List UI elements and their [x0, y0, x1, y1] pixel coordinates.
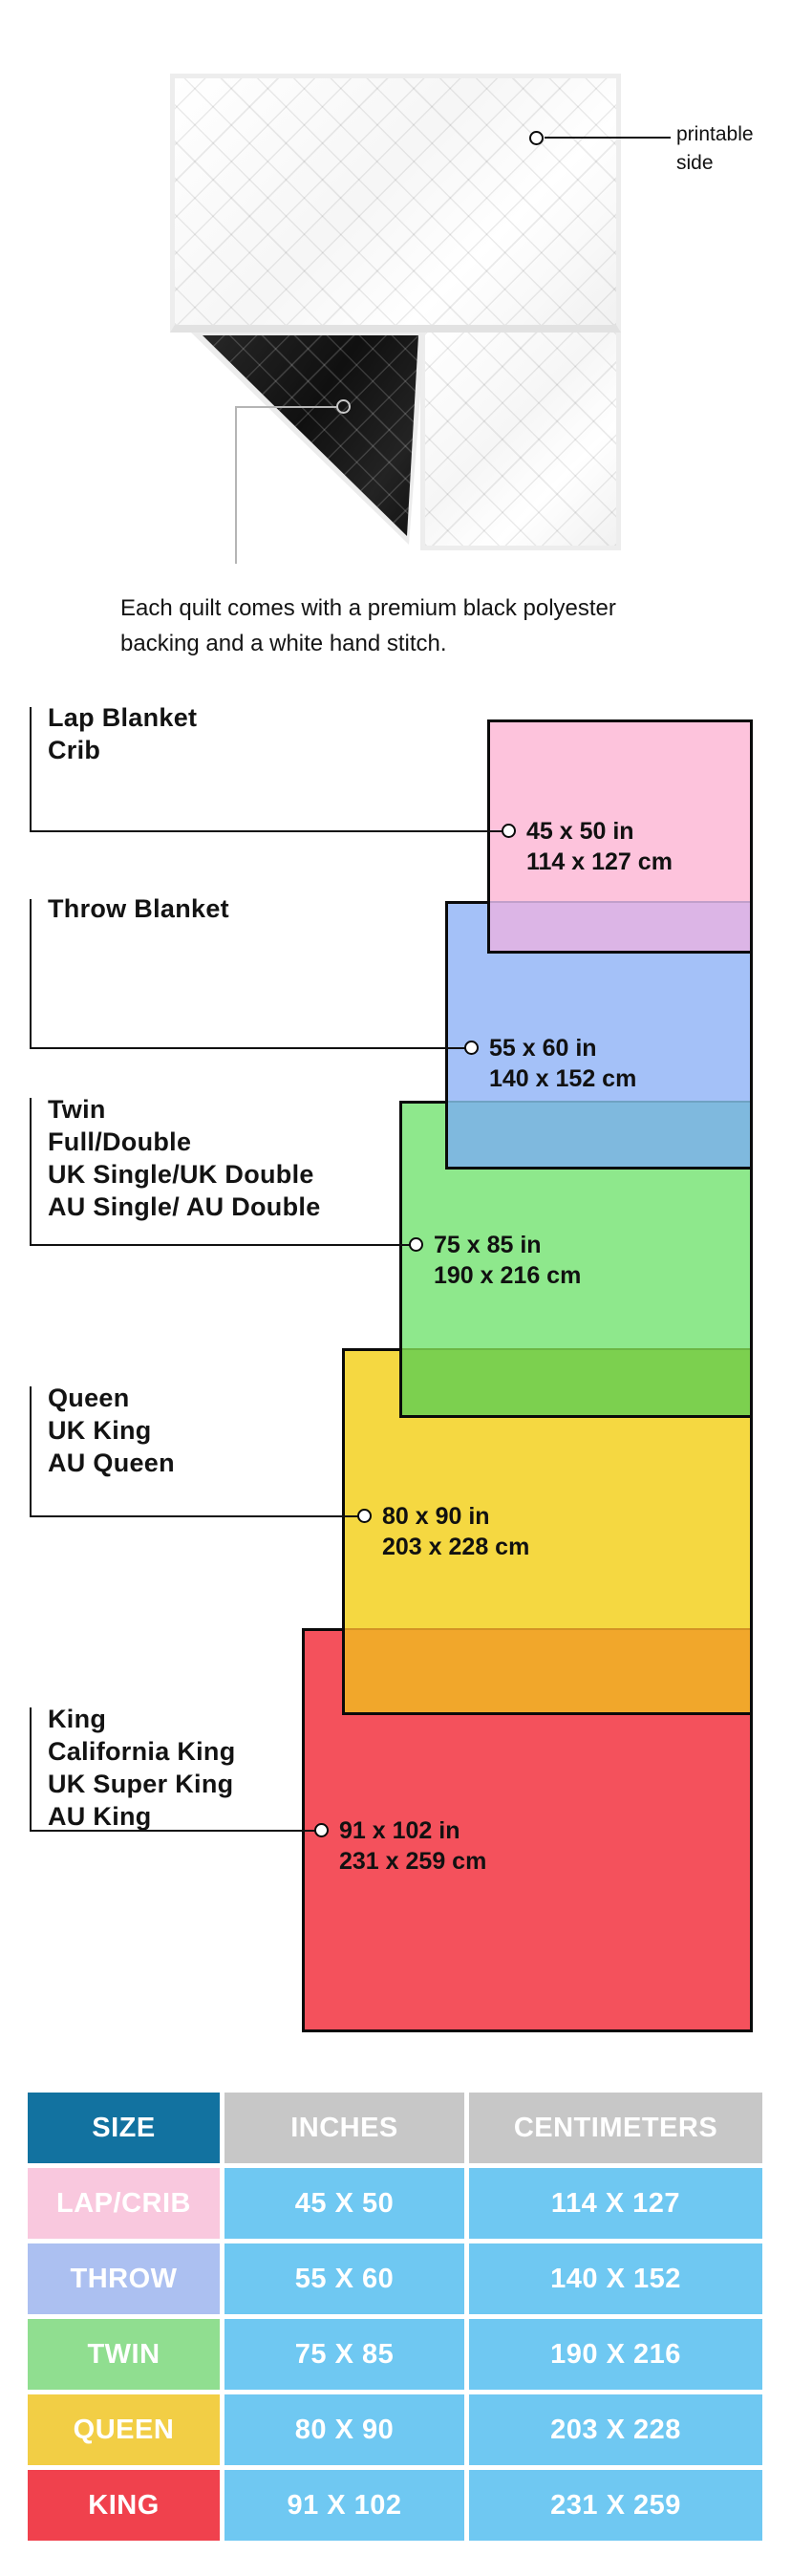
name-line: California King	[48, 1735, 236, 1768]
size-chart-page: { "quilt": { "printable_label_lines": ["…	[0, 0, 791, 2576]
name-line: UK Single/UK Double	[48, 1158, 321, 1191]
leader-dot-throw-icon	[464, 1041, 479, 1055]
table-cell-cm: 190 X 216	[469, 2319, 762, 2390]
table-header-inches: INCHES	[224, 2093, 464, 2163]
printable-side-label-line2: side	[676, 149, 754, 178]
dim-cm: 190 x 216 cm	[434, 1260, 581, 1291]
table-cell-inches: 80 X 90	[224, 2394, 464, 2465]
dimension-label-king: 91 x 102 in 231 x 259 cm	[339, 1815, 486, 1877]
quilt-caption-line2: backing and a white hand stitch.	[120, 626, 616, 661]
name-line: AU Queen	[48, 1447, 175, 1479]
dim-inches: 91 x 102 in	[339, 1815, 486, 1846]
printable-side-leader-line	[545, 137, 671, 139]
table-cell-inches: 91 X 102	[224, 2470, 464, 2541]
quilt-caption: Each quilt comes with a premium black po…	[120, 590, 616, 661]
overlap-band-throw-twin	[448, 1101, 750, 1167]
blanket-name-queen: Queen UK King AU Queen	[48, 1382, 175, 1479]
table-cell-cm: 203 X 228	[469, 2394, 762, 2465]
leader-v-twin	[30, 1098, 32, 1245]
backing-marker-icon	[336, 399, 351, 414]
printable-side-marker-icon	[529, 131, 544, 145]
name-line: King	[48, 1703, 236, 1735]
leader-h-twin	[30, 1244, 411, 1246]
name-line: Full/Double	[48, 1126, 321, 1158]
overlap-band-queen-king	[345, 1628, 750, 1712]
quilt-front-drape	[420, 333, 621, 550]
dimension-label-twin: 75 x 85 in 190 x 216 cm	[434, 1230, 581, 1291]
name-line: Crib	[48, 734, 197, 766]
dim-cm: 114 x 127 cm	[526, 847, 673, 877]
table-cell-cm: 140 X 152	[469, 2243, 762, 2314]
table-cell-cm: 231 X 259	[469, 2470, 762, 2541]
quilt-black-backing	[186, 333, 430, 552]
dim-cm: 231 x 259 cm	[339, 1846, 486, 1877]
table-header-size: SIZE	[28, 2093, 220, 2163]
leader-dot-twin-icon	[409, 1237, 423, 1252]
leader-dot-lap-icon	[502, 824, 516, 838]
name-line: Queen	[48, 1382, 175, 1414]
table-cell-cm: 114 X 127	[469, 2168, 762, 2239]
printable-side-label: printable side	[676, 120, 754, 178]
quilt-front-panel	[170, 74, 621, 333]
dim-inches: 55 x 60 in	[489, 1033, 636, 1063]
leader-h-lap	[30, 830, 503, 832]
table-row-label: KING	[28, 2470, 220, 2541]
name-line: AU Single/ AU Double	[48, 1191, 321, 1223]
dim-inches: 75 x 85 in	[434, 1230, 581, 1260]
leader-v-king	[30, 1707, 32, 1831]
leader-h-throw	[30, 1047, 466, 1049]
table-cell-inches: 55 X 60	[224, 2243, 464, 2314]
dim-cm: 203 x 228 cm	[382, 1532, 529, 1562]
backing-leader-line-v	[235, 406, 237, 564]
leader-v-throw	[30, 899, 32, 1048]
blanket-name-lap: Lap Blanket Crib	[48, 701, 197, 766]
overlap-band-lap-throw	[490, 901, 750, 951]
printable-side-label-line1: printable	[676, 120, 754, 149]
blanket-name-twin: Twin Full/Double UK Single/UK Double AU …	[48, 1093, 321, 1223]
name-line: AU King	[48, 1800, 236, 1833]
table-row-label: LAP/CRIB	[28, 2168, 220, 2239]
backing-leader-line-h	[235, 406, 336, 408]
dim-inches: 80 x 90 in	[382, 1501, 529, 1532]
leader-h-king	[30, 1830, 316, 1832]
table-row-label: QUEEN	[28, 2394, 220, 2465]
dimension-label-queen: 80 x 90 in 203 x 228 cm	[382, 1501, 529, 1562]
blanket-name-king: King California King UK Super King AU Ki…	[48, 1703, 236, 1833]
name-line: Twin	[48, 1093, 321, 1126]
blanket-name-throw: Throw Blanket	[48, 892, 229, 925]
name-line: Throw Blanket	[48, 892, 229, 925]
overlap-band-twin-queen	[402, 1348, 750, 1415]
quilt-backing-fold	[186, 333, 430, 552]
leader-dot-king-icon	[314, 1823, 329, 1837]
leader-dot-queen-icon	[357, 1509, 372, 1523]
table-header-centimeters: CENTIMETERS	[469, 2093, 762, 2163]
dimension-label-lap: 45 x 50 in 114 x 127 cm	[526, 816, 673, 877]
leader-h-queen	[30, 1515, 359, 1517]
dimension-label-throw: 55 x 60 in 140 x 152 cm	[489, 1033, 636, 1094]
table-row-label: TWIN	[28, 2319, 220, 2390]
name-line: UK Super King	[48, 1768, 236, 1800]
quilt-caption-line1: Each quilt comes with a premium black po…	[120, 590, 616, 626]
size-table: SIZE INCHES CENTIMETERS LAP/CRIB 45 X 50…	[28, 2093, 762, 2541]
leader-v-lap	[30, 707, 32, 831]
name-line: Lap Blanket	[48, 701, 197, 734]
dim-cm: 140 x 152 cm	[489, 1063, 636, 1094]
name-line: UK King	[48, 1414, 175, 1447]
table-cell-inches: 75 X 85	[224, 2319, 464, 2390]
table-cell-inches: 45 X 50	[224, 2168, 464, 2239]
dim-inches: 45 x 50 in	[526, 816, 673, 847]
table-row-label: THROW	[28, 2243, 220, 2314]
leader-v-queen	[30, 1386, 32, 1516]
